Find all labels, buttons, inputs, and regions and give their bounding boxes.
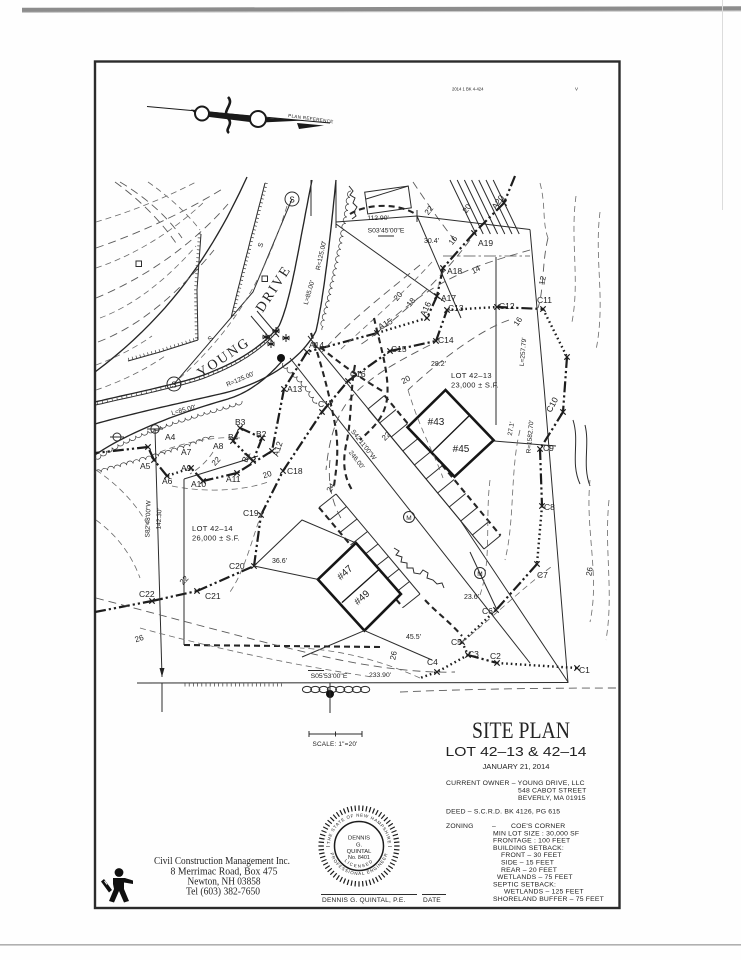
svg-text:C22: C22 xyxy=(139,589,155,599)
svg-text:2014 1 BK 4-424: 2014 1 BK 4-424 xyxy=(452,87,484,92)
svg-text:SIDE – 15 FEET: SIDE – 15 FEET xyxy=(501,860,554,867)
svg-text:FRONTAGE : 100 FEET: FRONTAGE : 100 FEET xyxy=(493,838,570,845)
svg-text:30.4': 30.4' xyxy=(424,238,439,245)
svg-text:A6: A6 xyxy=(162,476,173,486)
svg-text:S: S xyxy=(171,381,176,390)
svg-text:C3: C3 xyxy=(468,649,479,659)
svg-text:A8: A8 xyxy=(213,441,224,451)
svg-text:WETLANDS – 75 FEET: WETLANDS – 75 FEET xyxy=(497,874,573,881)
svg-text:DENNIS G. QUINTAL, P.E.: DENNIS G. QUINTAL, P.E. xyxy=(322,897,406,904)
svg-text:SHORELAND BUFFER – 75 FEET: SHORELAND BUFFER – 75 FEET xyxy=(493,896,604,903)
svg-text:14: 14 xyxy=(470,263,483,275)
svg-text:20: 20 xyxy=(262,469,274,480)
svg-text:36.6': 36.6' xyxy=(272,558,287,565)
svg-text:DATE: DATE xyxy=(423,897,441,904)
svg-text:C2: C2 xyxy=(490,651,501,661)
svg-text:–: – xyxy=(492,823,496,830)
svg-text:A19: A19 xyxy=(478,238,493,248)
svg-text:C1: C1 xyxy=(579,665,590,675)
svg-text:B2: B2 xyxy=(256,429,267,439)
svg-text:A5: A5 xyxy=(140,461,151,471)
svg-text:C8: C8 xyxy=(544,502,555,512)
svg-text:–: – xyxy=(326,844,330,851)
svg-text:A4: A4 xyxy=(165,432,176,442)
svg-text:DRIVE: DRIVE xyxy=(253,263,294,315)
svg-text:S03'45'00"E: S03'45'00"E xyxy=(368,228,405,235)
svg-text:C18: C18 xyxy=(287,466,303,476)
svg-text:C19: C19 xyxy=(243,508,259,518)
svg-text:20: 20 xyxy=(461,202,474,215)
svg-text:No. 8401: No. 8401 xyxy=(348,855,370,861)
svg-text:L=85.00': L=85.00' xyxy=(171,404,197,417)
svg-text:SEPTIC SETBACK:: SEPTIC SETBACK: xyxy=(493,881,556,888)
svg-text:WETLANDS – 125 FEET: WETLANDS – 125 FEET xyxy=(504,889,584,896)
svg-text:SITE PLAN: SITE PLAN xyxy=(472,718,570,743)
svg-text:LOT 42–13 & 42–14: LOT 42–13 & 42–14 xyxy=(446,744,587,759)
svg-text:A17: A17 xyxy=(441,293,456,303)
svg-text:L=85.00': L=85.00' xyxy=(303,280,317,306)
svg-text:20: 20 xyxy=(400,373,413,385)
svg-text:22: 22 xyxy=(178,574,191,587)
svg-text:C9: C9 xyxy=(543,443,554,453)
svg-text:112.90': 112.90' xyxy=(367,215,389,222)
svg-text:ZONING: ZONING xyxy=(446,823,474,830)
svg-text:16: 16 xyxy=(447,234,460,247)
svg-text:23.6': 23.6' xyxy=(464,594,479,601)
svg-text:S82'48'00"W: S82'48'00"W xyxy=(144,499,152,537)
svg-text:A9: A9 xyxy=(181,463,192,473)
svg-text:26: 26 xyxy=(134,633,146,644)
svg-text:FRONT – 30 FEET: FRONT – 30 FEET xyxy=(501,852,562,859)
svg-text:MIN LOT SIZE : 30,000 SF: MIN LOT SIZE : 30,000 SF xyxy=(493,830,579,837)
svg-text:–: – xyxy=(388,844,392,851)
svg-text:C12: C12 xyxy=(499,301,515,311)
svg-text:C21: C21 xyxy=(205,591,221,601)
svg-text:BEVERLY, MA 01915: BEVERLY, MA 01915 xyxy=(518,795,586,802)
svg-text:CURRENT OWNER – YOUNG DRIVE, L: CURRENT OWNER – YOUNG DRIVE, LLC xyxy=(446,780,585,787)
svg-text:26: 26 xyxy=(584,566,595,577)
svg-text:22: 22 xyxy=(210,455,223,468)
svg-text:LOT 42–13: LOT 42–13 xyxy=(451,371,492,380)
svg-text:A13: A13 xyxy=(287,384,302,394)
svg-text:S: S xyxy=(207,335,215,344)
svg-text:A10: A10 xyxy=(191,479,206,489)
svg-text:BUILDING SETBACK:: BUILDING SETBACK: xyxy=(493,845,564,852)
svg-text:C5: C5 xyxy=(451,637,462,647)
svg-text:45.5': 45.5' xyxy=(406,634,421,641)
svg-text:LOT 42–14: LOT 42–14 xyxy=(192,524,233,533)
svg-text:12: 12 xyxy=(537,275,548,286)
svg-text:M: M xyxy=(406,515,411,522)
svg-text:R=125.00': R=125.00' xyxy=(225,371,255,389)
svg-text:S: S xyxy=(257,242,265,249)
svg-text:S05'53'00"E: S05'53'00"E xyxy=(311,673,348,680)
svg-text:A16: A16 xyxy=(418,300,434,318)
svg-text:PLAN REFERENCE: PLAN REFERENCE xyxy=(288,113,334,124)
svg-text:16: 16 xyxy=(512,315,525,328)
svg-text:JANUARY 21, 2014: JANUARY 21, 2014 xyxy=(483,762,550,771)
svg-text:C14: C14 xyxy=(438,335,454,345)
svg-text:COE'S CORNER: COE'S CORNER xyxy=(511,823,565,830)
svg-text:B4: B4 xyxy=(228,432,239,442)
svg-text:548 CABOT STREET: 548 CABOT STREET xyxy=(518,788,586,795)
svg-text:A7: A7 xyxy=(181,447,192,457)
svg-text:G.: G. xyxy=(356,843,363,849)
svg-text:246.00': 246.00' xyxy=(347,450,366,471)
svg-text:REAR – 20 FEET: REAR – 20 FEET xyxy=(501,867,557,874)
svg-text:26,000 ± S.F.: 26,000 ± S.F. xyxy=(192,534,240,543)
svg-text:23,000 ± S.F.: 23,000 ± S.F. xyxy=(451,381,499,390)
svg-text:22: 22 xyxy=(423,204,436,217)
svg-text:142.30': 142.30' xyxy=(156,508,164,529)
svg-text:C7: C7 xyxy=(537,570,548,580)
svg-text:A11: A11 xyxy=(226,474,241,484)
svg-text:A18: A18 xyxy=(447,266,462,276)
svg-text:#43: #43 xyxy=(428,417,445,428)
svg-text:28.2': 28.2' xyxy=(431,361,446,368)
svg-text:R=1582.70': R=1582.70' xyxy=(526,420,536,454)
svg-text:#45: #45 xyxy=(453,444,470,455)
svg-text:DEED – S.C.R.D. BK 4126, PG 61: DEED – S.C.R.D. BK 4126, PG 615 xyxy=(446,809,560,816)
svg-text:S: S xyxy=(289,196,294,205)
svg-text:22: 22 xyxy=(380,430,393,443)
svg-text:DENNIS: DENNIS xyxy=(348,836,370,842)
svg-text:233.90': 233.90' xyxy=(369,672,391,679)
svg-text:B3: B3 xyxy=(235,417,246,427)
svg-text:V: V xyxy=(575,87,578,92)
svg-text:Tel (603) 382-7650: Tel (603) 382-7650 xyxy=(186,886,260,898)
svg-text:L=257.79': L=257.79' xyxy=(519,337,528,366)
svg-text:SCALE: 1"=20': SCALE: 1"=20' xyxy=(313,741,358,748)
svg-text:C15: C15 xyxy=(391,344,407,354)
svg-text:C13: C13 xyxy=(448,303,464,313)
svg-text:A20: A20 xyxy=(489,193,506,211)
svg-text:C20: C20 xyxy=(229,561,245,571)
svg-text:C10: C10 xyxy=(544,395,560,414)
svg-text:26: 26 xyxy=(388,650,399,661)
svg-text:27.1': 27.1' xyxy=(507,421,516,436)
